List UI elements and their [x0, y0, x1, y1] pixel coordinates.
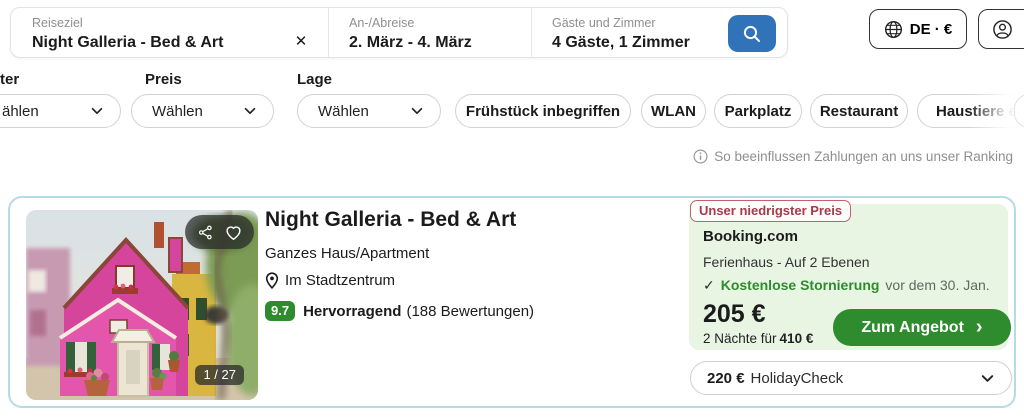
clear-destination-icon[interactable]: ✕: [291, 32, 311, 52]
listing-location: Im Stadtzentrum: [265, 272, 395, 289]
cta-label: Zum Angebot: [861, 319, 964, 337]
amenity-pets[interactable]: Haustiere e: [917, 94, 1024, 128]
account-button[interactable]: [978, 9, 1024, 49]
dates-field[interactable]: An-/Abreise 2. März - 4. März: [328, 8, 531, 57]
offer-total-prefix: 2 Nächte für: [703, 331, 777, 346]
amenity-label: Haustiere e: [936, 103, 1017, 120]
destination-label: Reiseziel: [32, 16, 328, 31]
dropdown-value: Wählen: [318, 103, 369, 120]
locale-label: DE · €: [910, 21, 953, 38]
chevron-right-icon: ›: [976, 319, 983, 335]
filter-label-price: Preis: [145, 71, 182, 88]
best-offer-panel: Unser niedrigster Preis Booking.com Feri…: [689, 204, 1008, 350]
ranking-note-text: So beeinflussen Zahlungen an uns unser R…: [714, 149, 1013, 164]
dates-value: 2. März - 4. März: [349, 33, 531, 53]
info-icon: [693, 149, 708, 164]
offer-price: 205 €: [703, 300, 766, 329]
lowest-price-badge: Unser niedrigster Preis: [690, 200, 851, 222]
offer-total-price: 410 €: [780, 331, 814, 346]
dropdown-value: Wählen: [152, 103, 203, 120]
destination-value: Night Galleria - Bed & Art: [32, 33, 328, 53]
amenity-label: WLAN: [651, 103, 696, 120]
heart-icon[interactable]: [224, 223, 243, 242]
cancellation-highlight: Kostenlose Stornierung: [721, 277, 880, 293]
guests-value: 4 Gäste, 1 Zimmer: [552, 33, 721, 53]
amenity-label: Frühstück inbegriffen: [466, 103, 620, 120]
share-icon[interactable]: [197, 224, 214, 241]
chevron-down-icon: [90, 104, 104, 118]
listing-title[interactable]: Night Galleria - Bed & Art: [265, 208, 516, 232]
rating-label: Hervorragend: [303, 303, 401, 320]
alt-offer-row[interactable]: 220 € HolidayCheck: [690, 361, 1012, 395]
search-bar: Reiseziel Night Galleria - Bed & Art ✕ A…: [10, 7, 788, 58]
dates-label: An-/Abreise: [349, 16, 531, 31]
search-icon: [741, 23, 763, 45]
locale-currency-button[interactable]: DE · €: [869, 9, 967, 49]
amenity-wifi[interactable]: WLAN: [641, 94, 706, 128]
chevron-down-icon: [410, 104, 424, 118]
view-offer-button[interactable]: Zum Angebot ›: [833, 309, 1011, 346]
rating-reviews: (188 Bewertungen): [406, 303, 534, 320]
location-text: Im Stadtzentrum: [285, 272, 395, 289]
dropdown-filter-cropped[interactable]: ählen: [0, 94, 121, 128]
listing-rating[interactable]: 9.7 Hervorragend (188 Bewertungen): [265, 301, 534, 321]
location-pin-icon: [265, 272, 279, 289]
page: { "colors": { "accent_blue": "#3173b9", …: [0, 0, 1024, 417]
offer-total: 2 Nächte für410 €: [703, 331, 813, 346]
amenity-label: Parkplatz: [725, 103, 792, 120]
amenity-breakfast[interactable]: Frühstück inbegriffen: [455, 94, 631, 128]
dropdown-location[interactable]: Wählen: [297, 94, 441, 128]
cancellation-info: ✓ Kostenlose Stornierung vor dem 30. Jan…: [703, 277, 990, 294]
ranking-note[interactable]: So beeinflussen Zahlungen an uns unser R…: [693, 149, 1013, 164]
alt-offer-provider: HolidayCheck: [751, 370, 844, 387]
filter-label-cropped: ter: [0, 71, 19, 88]
guests-label: Gäste und Zimmer: [552, 16, 721, 31]
photo-action-pill: [185, 215, 254, 249]
destination-field[interactable]: Reiseziel Night Galleria - Bed & Art: [11, 8, 328, 57]
image-counter: 1 / 27: [195, 365, 244, 385]
offer-room-type: Ferienhaus - Auf 2 Ebenen: [703, 254, 870, 270]
listing-card: 1 / 27 Night Galleria - Bed & Art Ganzes…: [8, 196, 1016, 408]
dropdown-value: ählen: [2, 103, 39, 120]
offer-provider: Booking.com: [703, 228, 798, 245]
rating-score-badge: 9.7: [265, 301, 295, 321]
amenity-parking[interactable]: Parkplatz: [714, 94, 802, 128]
dropdown-price[interactable]: Wählen: [131, 94, 274, 128]
user-icon: [992, 19, 1013, 40]
check-icon: ✓: [703, 277, 715, 294]
filter-label-location: Lage: [297, 71, 332, 88]
globe-icon: [884, 20, 903, 39]
cancellation-deadline: vor dem 30. Jan.: [885, 277, 989, 293]
alt-offer-price: 220 €: [707, 370, 745, 387]
amenity-restaurant[interactable]: Restaurant: [810, 94, 908, 128]
chevron-down-icon: [980, 371, 995, 386]
listing-photo[interactable]: 1 / 27: [26, 210, 258, 400]
listing-type: Ganzes Haus/Apartment: [265, 245, 429, 262]
chevron-down-icon: [243, 104, 257, 118]
search-button[interactable]: [728, 15, 776, 52]
amenity-label: Restaurant: [820, 103, 898, 120]
guests-field[interactable]: Gäste und Zimmer 4 Gäste, 1 Zimmer: [531, 8, 721, 57]
